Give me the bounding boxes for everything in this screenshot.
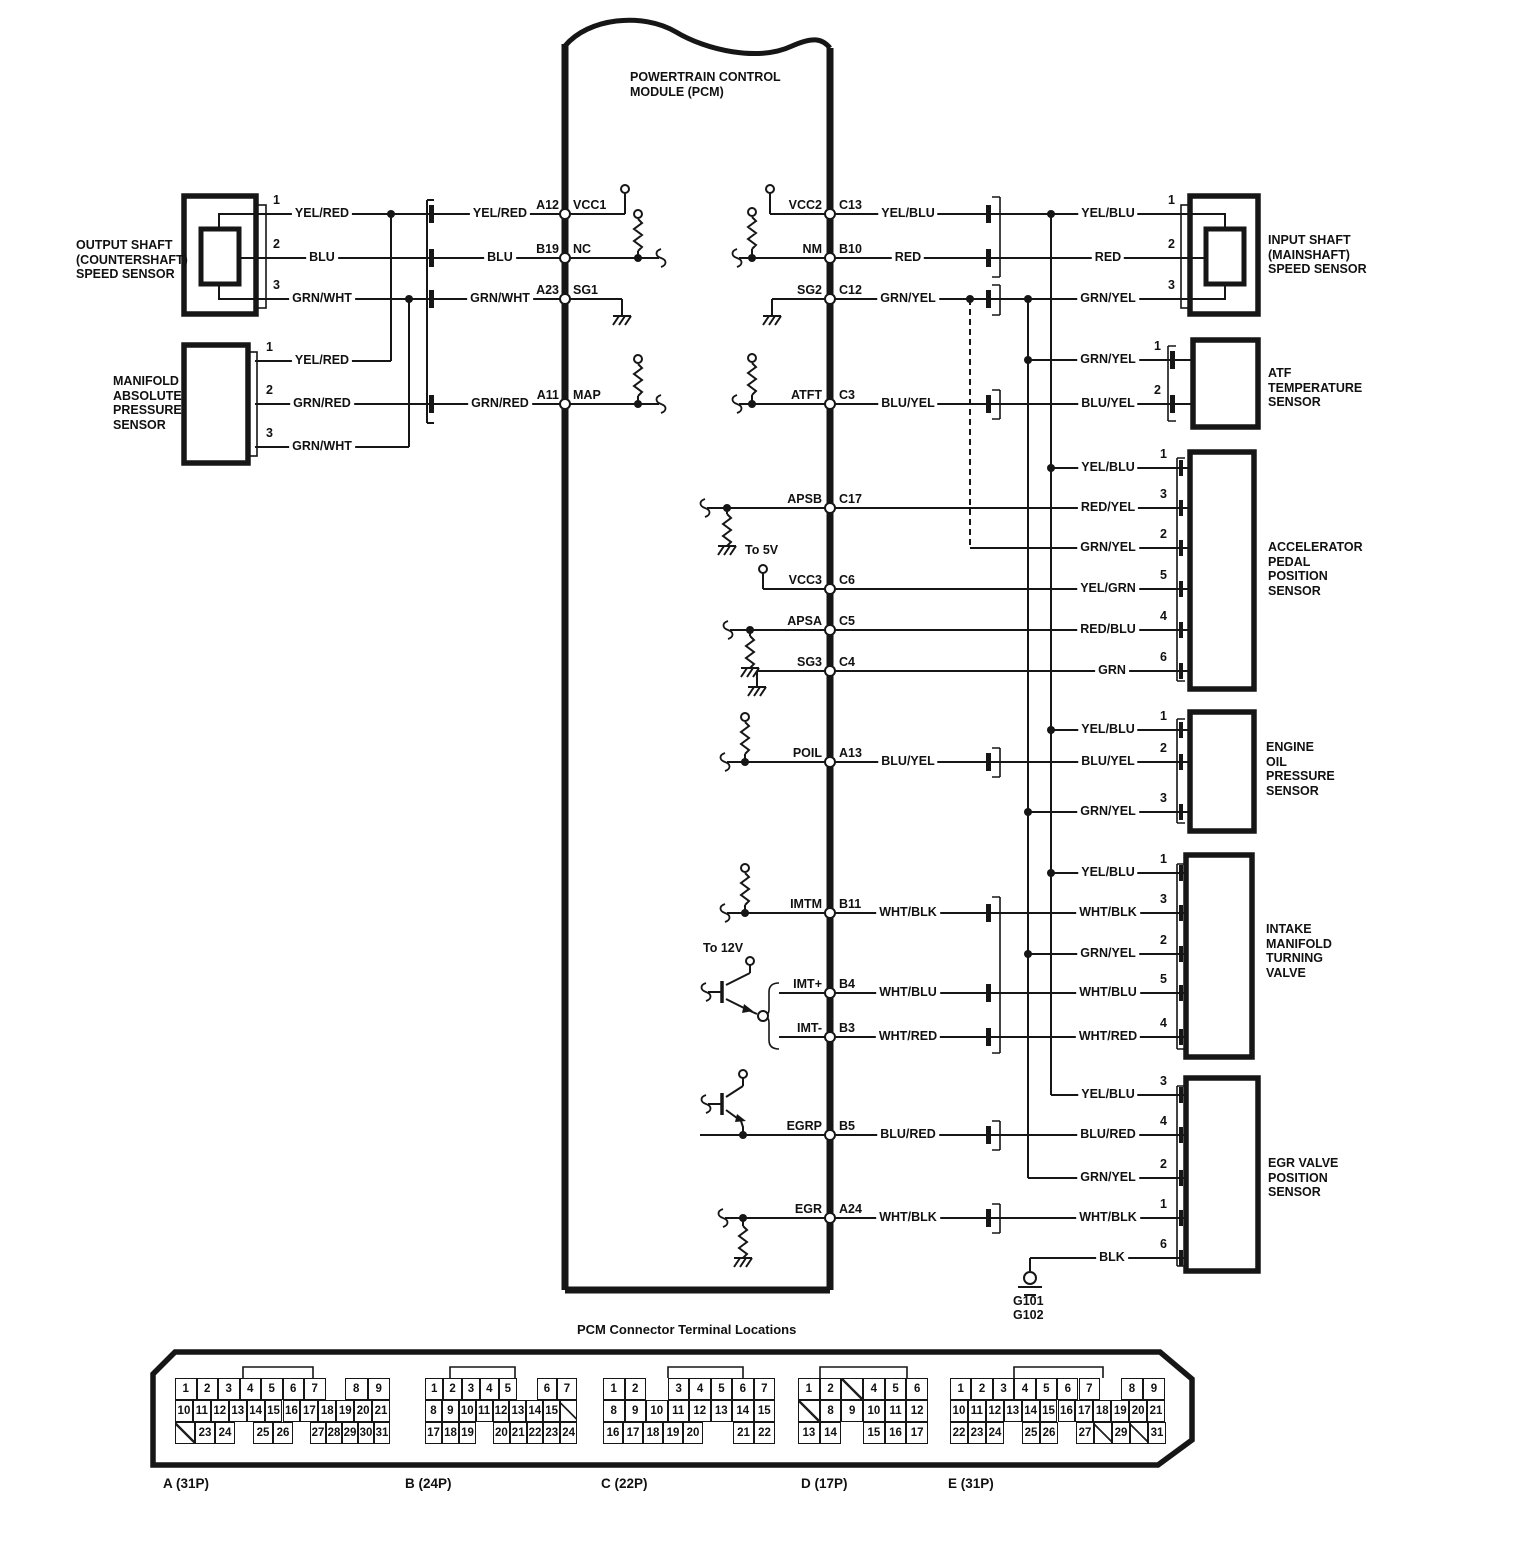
terminal-cell: 12	[906, 1400, 928, 1422]
wire-color-label: GRN/YEL	[1077, 1170, 1139, 1185]
terminal-cell: 9	[625, 1400, 647, 1422]
terminal-cell	[1130, 1422, 1148, 1444]
sensor-label: INPUT SHAFT (MAINSHAFT) SPEED SENSOR	[1268, 233, 1367, 277]
terminal-cell: 12	[986, 1400, 1004, 1422]
wiring-diagram-page: POWERTRAIN CONTROL MODULE (PCM) YEL/REDB…	[0, 0, 1536, 1544]
terminal-cell: 27	[310, 1422, 326, 1444]
sensor-pin-number: 3	[1158, 1074, 1169, 1088]
pcm-pin-row-right: APSB C17	[0, 492, 1536, 506]
terminal-cell: 7	[1079, 1378, 1100, 1400]
terminal-cell: 14	[820, 1422, 842, 1444]
to-5v-label: To 5V	[745, 543, 778, 557]
sensor-pin-number: 6	[1158, 650, 1169, 664]
terminal-cell: 3	[462, 1378, 480, 1400]
sensor-pin-number: 1	[1166, 193, 1177, 207]
terminal-cell: 4	[863, 1378, 885, 1400]
terminal-cell: 13	[229, 1400, 247, 1422]
terminal-cell: 18	[318, 1400, 336, 1422]
pcm-pin-code: C6	[839, 573, 855, 587]
terminal-cell: 24	[560, 1422, 577, 1444]
terminal-cell: 5	[885, 1378, 907, 1400]
pcm-pin-name: IMT+	[736, 977, 822, 991]
pcm-pin-row-right: EGR A24	[0, 1202, 1536, 1216]
sensor-pin-number: 1	[1158, 852, 1169, 866]
terminal-cell: 8	[425, 1400, 442, 1422]
sensor-pin-number: 1	[1158, 447, 1169, 461]
terminal-cell: 4	[240, 1378, 262, 1400]
terminal-cell: 2	[443, 1378, 461, 1400]
sensor-pin-number: 1	[271, 193, 282, 207]
wire-color-label: YEL/BLU	[1078, 722, 1137, 737]
terminal-cell: 13	[1004, 1400, 1022, 1422]
sensor-label: MANIFOLD ABSOLUTE PRESSURE SENSOR	[113, 374, 182, 432]
terminal-cell: 2	[971, 1378, 992, 1400]
terminal-cell: 20	[683, 1422, 703, 1444]
terminal-cell: 9	[368, 1378, 391, 1400]
pcm-pin-code: C5	[839, 614, 855, 628]
terminal-cell: 17	[623, 1422, 643, 1444]
terminal-cell: 12	[493, 1400, 510, 1422]
sensor-label: OUTPUT SHAFT (COUNTERSHAFT) SPEED SENSOR	[76, 238, 188, 282]
pcm-pin-code: C12	[839, 283, 862, 297]
terminal-cell: 3	[668, 1378, 689, 1400]
terminal-cell: 14	[732, 1400, 754, 1422]
pcm-pin-name: ATFT	[736, 388, 822, 402]
terminal-cell: 23	[543, 1422, 560, 1444]
terminal-cell: 24	[215, 1422, 235, 1444]
sensor-pin-number: 5	[1158, 568, 1169, 582]
terminal-cell: 8	[345, 1378, 368, 1400]
terminal-cell: 13	[798, 1422, 820, 1444]
terminal-cell: 10	[175, 1400, 193, 1422]
terminal-cell: 11	[193, 1400, 211, 1422]
resistor-symbols	[634, 217, 756, 1258]
wire-color-label: YEL/BLU	[1078, 460, 1137, 475]
terminal-cell: 1	[175, 1378, 197, 1400]
terminal-cell: 8	[1121, 1378, 1143, 1400]
accel-pedal-sensor-box	[1190, 452, 1254, 689]
pcm-pin-row-right: IMT- B3	[0, 1021, 1536, 1035]
wire-color-label: GRN/YEL	[1077, 352, 1139, 367]
oil-pressure-sensor-box	[1190, 712, 1254, 831]
atf-temp-sensor-box	[1193, 340, 1258, 427]
terminal-cell	[560, 1400, 577, 1422]
junction-dots	[387, 210, 1055, 1222]
sensor-pin-number: 1	[1158, 1197, 1169, 1211]
connector-caption: C (22P)	[601, 1476, 648, 1491]
sensor-pin-number: 3	[1158, 892, 1169, 906]
terminal-cell: 28	[326, 1422, 342, 1444]
connector-brackets	[992, 197, 1000, 1233]
terminal-cell	[1094, 1422, 1112, 1444]
terminal-cell: 9	[1143, 1378, 1165, 1400]
terminal-cell: 18	[442, 1422, 459, 1444]
keyway-brackets	[243, 1367, 1103, 1378]
terminal-cell: 16	[885, 1422, 907, 1444]
connector-caption: D (17P)	[801, 1476, 848, 1491]
terminal-cell: 6	[537, 1378, 557, 1400]
pcm-pin-code: C17	[839, 492, 862, 506]
terminal-cell: 11	[885, 1400, 907, 1422]
terminal-cell: 5	[261, 1378, 283, 1400]
terminal-cell: 18	[643, 1422, 663, 1444]
terminal-cell: 31	[374, 1422, 390, 1444]
pcm-pin-row-right: IMTM B11	[0, 897, 1536, 911]
pcm-pin-row-right: EGRP B5	[0, 1119, 1536, 1133]
pcm-pin-row-right: APSA C5	[0, 614, 1536, 628]
sensor-pin-number: 3	[264, 426, 275, 440]
terminal-cell: 16	[283, 1400, 301, 1422]
terminal-cell: 2	[820, 1378, 842, 1400]
wire-color-label: YEL/BLU	[1078, 1087, 1137, 1102]
terminal-cell: 30	[358, 1422, 374, 1444]
pcm-pin-code: B4	[839, 977, 855, 991]
sensor-pin-number: 4	[1158, 1114, 1169, 1128]
terminal-cell: 13	[509, 1400, 526, 1422]
wire-color-label: GRN/YEL	[1077, 804, 1139, 819]
terminal-cell: 2	[197, 1378, 219, 1400]
wire-color-label: GRN/YEL	[1077, 946, 1139, 961]
terminal-cell: 15	[265, 1400, 283, 1422]
terminal-cell: 29	[342, 1422, 358, 1444]
pcm-pin-name: VCC2	[736, 198, 822, 212]
terminal-cell: 21	[1147, 1400, 1165, 1422]
terminal-cell: 10	[646, 1400, 668, 1422]
output-shaft-sensor-inner	[201, 229, 239, 284]
pcm-pin-row-right: SG2 C12	[0, 283, 1536, 297]
terminal-cell: 22	[754, 1422, 775, 1444]
sensor-pin-number: 1	[1152, 339, 1163, 353]
pcm-pin-name: APSB	[736, 492, 822, 506]
terminal-cell: 16	[603, 1422, 623, 1444]
terminal-cell: 19	[459, 1422, 476, 1444]
sensor-pin-number: 4	[1158, 609, 1169, 623]
terminal-cell: 1	[425, 1378, 443, 1400]
pcm-pin-name: NM	[736, 242, 822, 256]
terminal-cell: 7	[754, 1378, 775, 1400]
sensor-pin-number: 4	[1158, 1016, 1169, 1030]
terminal-cell: 15	[863, 1422, 885, 1444]
pcm-pin-code: A13	[839, 746, 862, 760]
terminal-cell: 9	[442, 1400, 459, 1422]
input-shaft-sensor-inner	[1206, 229, 1244, 284]
terminal-cell: 25	[1022, 1422, 1040, 1444]
terminal-cell: 12	[689, 1400, 711, 1422]
connector-caption: B (24P)	[405, 1476, 452, 1491]
terminal-cell: 17	[425, 1422, 442, 1444]
terminal-cell: 13	[711, 1400, 733, 1422]
egr-sensor-box	[1186, 1078, 1258, 1271]
pcm-pin-name: SG2	[736, 283, 822, 297]
connector-caption: E (31P)	[948, 1476, 994, 1491]
terminal-cell: 27	[1076, 1422, 1094, 1444]
terminal-cell: 22	[527, 1422, 544, 1444]
terminal-cell: 12	[211, 1400, 229, 1422]
terminal-cell: 20	[1129, 1400, 1147, 1422]
terminal-cell: 2	[625, 1378, 647, 1400]
terminal-cell: 4	[1014, 1378, 1035, 1400]
terminal-cell: 15	[543, 1400, 560, 1422]
sensor-pin-number: 2	[1166, 237, 1177, 251]
terminal-cell: 6	[1057, 1378, 1078, 1400]
sensor-pin-number: 3	[1158, 791, 1169, 805]
pcm-pin-code: C13	[839, 198, 862, 212]
sensor-label: ENGINE OIL PRESSURE SENSOR	[1266, 740, 1335, 798]
sensor-pin-number: 2	[1152, 383, 1163, 397]
wire-color-label: YEL/BLU	[1078, 865, 1137, 880]
sensor-pin-number: 1	[1158, 709, 1169, 723]
terminal-cell: 23	[968, 1422, 986, 1444]
terminal-cell: 5	[1036, 1378, 1057, 1400]
pcm-pin-code: B5	[839, 1119, 855, 1133]
sensor-pin-number: 1	[264, 340, 275, 354]
pcm-pin-code: B10	[839, 242, 862, 256]
terminal-cell: 16	[1058, 1400, 1076, 1422]
terminal-cell: 26	[273, 1422, 293, 1444]
pcm-pin-name: IMTM	[736, 897, 822, 911]
terminal-cell: 20	[493, 1422, 510, 1444]
terminal-cell: 24	[986, 1422, 1004, 1444]
sensor-label: EGR VALVE POSITION SENSOR	[1268, 1156, 1338, 1200]
terminal-cell: 18	[1093, 1400, 1111, 1422]
sensor-label: INTAKE MANIFOLD TURNING VALVE	[1266, 922, 1332, 980]
terminal-cell	[841, 1378, 863, 1400]
sensor-pin-number: 3	[271, 278, 282, 292]
sensor-pin-number: 2	[1158, 527, 1169, 541]
sensor-pin-number: 2	[271, 237, 282, 251]
terminal-cell: 10	[863, 1400, 885, 1422]
terminal-cell: 21	[510, 1422, 527, 1444]
pcm-pin-name: APSA	[736, 614, 822, 628]
connector-caption: A (31P)	[163, 1476, 209, 1491]
terminal-cell: 14	[526, 1400, 543, 1422]
terminal-cell: 19	[1111, 1400, 1129, 1422]
terminal-cell: 7	[557, 1378, 577, 1400]
terminal-cell	[798, 1400, 820, 1422]
terminal-cell: 8	[820, 1400, 842, 1422]
terminal-cell: 6	[283, 1378, 305, 1400]
pcm-pin-row-right: VCC2 C13	[0, 198, 1536, 212]
pcm-pin-code: B11	[839, 897, 861, 911]
pcm-pin-circles	[560, 209, 835, 1223]
terminal-cell: 10	[950, 1400, 968, 1422]
terminal-cell: 23	[195, 1422, 215, 1444]
terminal-cell: 29	[1112, 1422, 1130, 1444]
terminal-panel-title: PCM Connector Terminal Locations	[577, 1322, 796, 1337]
sensor-label: ACCELERATOR PEDAL POSITION SENSOR	[1268, 540, 1363, 598]
pcm-title: POWERTRAIN CONTROL MODULE (PCM)	[630, 70, 781, 100]
sensor-pin-number: 5	[1158, 972, 1169, 986]
sensor-pin-number: 3	[1166, 278, 1177, 292]
sensor-pin-number: 2	[1158, 741, 1169, 755]
terminal-cell: 11	[968, 1400, 986, 1422]
sensor-label: ATF TEMPERATURE SENSOR	[1268, 366, 1362, 410]
terminal-cell: 5	[711, 1378, 732, 1400]
terminal-cell: 19	[336, 1400, 354, 1422]
terminal-cell: 4	[480, 1378, 498, 1400]
sensor-pin-number: 3	[1158, 487, 1169, 501]
pcm-pin-code: C3	[839, 388, 855, 402]
terminal-cell: 17	[1075, 1400, 1093, 1422]
terminal-cell: 14	[247, 1400, 265, 1422]
terminal-cell: 25	[253, 1422, 273, 1444]
terminal-cell: 17	[906, 1422, 928, 1444]
pcm-top-wave	[565, 20, 830, 53]
terminal-cell: 1	[798, 1378, 820, 1400]
terminal-cell: 7	[304, 1378, 326, 1400]
terminal-cell: 19	[663, 1422, 683, 1444]
wire-color-label: GRN/WHT	[289, 439, 355, 454]
pcm-pin-name: VCC3	[736, 573, 822, 587]
pcm-pin-row-right: SG3 C4	[0, 655, 1536, 669]
pcm-pin-code: A24	[839, 1202, 862, 1216]
pcm-pin-name: EGR	[736, 1202, 822, 1216]
terminal-cell: 5	[499, 1378, 517, 1400]
connector-terminal-bars	[429, 205, 1183, 1266]
wire-color-label: YEL/RED	[292, 353, 352, 368]
terminal-cell: 8	[603, 1400, 625, 1422]
pcm-pin-code: C4	[839, 655, 855, 669]
terminal-cell: 21	[372, 1400, 390, 1422]
wire-color-label: GRN/YEL	[1077, 540, 1139, 555]
terminal-cell: 10	[459, 1400, 476, 1422]
sensor-pin-number: 2	[264, 383, 275, 397]
to-12v-label: To 12V	[703, 941, 743, 955]
terminal-cell: 17	[300, 1400, 318, 1422]
pcm-pin-name: EGRP	[736, 1119, 822, 1133]
sensor-pin-number: 6	[1158, 1237, 1169, 1251]
pcm-pin-name: POIL	[736, 746, 822, 760]
terminal-cell: 15	[754, 1400, 776, 1422]
terminal-cell: 22	[950, 1422, 968, 1444]
terminal-cell: 6	[732, 1378, 753, 1400]
terminal-cell: 11	[668, 1400, 690, 1422]
sensor-pin-number: 2	[1158, 933, 1169, 947]
terminal-cell: 21	[733, 1422, 754, 1444]
terminal-cell: 3	[993, 1378, 1014, 1400]
terminal-cell: 15	[1040, 1400, 1058, 1422]
terminal-cell: 14	[1022, 1400, 1040, 1422]
terminal-cell	[175, 1422, 195, 1444]
ground-ids-label: G101 G102	[1013, 1294, 1044, 1322]
sensor-pin-number: 2	[1158, 1157, 1169, 1171]
terminal-cell: 1	[950, 1378, 971, 1400]
terminal-cell: 11	[476, 1400, 493, 1422]
pcm-pin-name: IMT-	[736, 1021, 822, 1035]
map-sensor-box	[184, 345, 248, 463]
terminal-cell: 1	[603, 1378, 625, 1400]
terminal-cell: 4	[689, 1378, 710, 1400]
terminal-cell: 9	[841, 1400, 863, 1422]
terminal-cell: 6	[906, 1378, 928, 1400]
wire-color-label: BLK	[1096, 1250, 1128, 1265]
pcm-pin-code: B3	[839, 1021, 855, 1035]
terminal-cell: 26	[1040, 1422, 1058, 1444]
terminal-cell: 20	[354, 1400, 372, 1422]
pcm-pin-name: SG3	[736, 655, 822, 669]
terminal-cell: 3	[218, 1378, 240, 1400]
terminal-cell: 31	[1148, 1422, 1166, 1444]
